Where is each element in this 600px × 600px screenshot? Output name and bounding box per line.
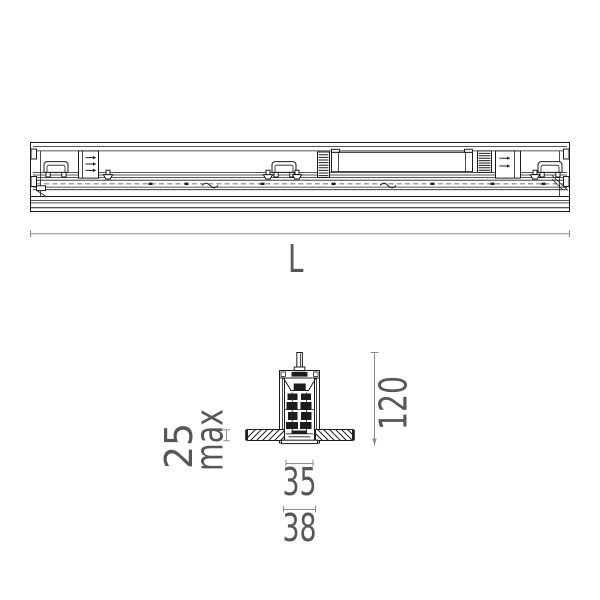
terminal-strip-left bbox=[318, 152, 330, 178]
overall-width-label: 38 bbox=[283, 506, 317, 550]
wiring-box-left bbox=[79, 151, 99, 178]
suspension-hook bbox=[103, 170, 112, 179]
recess-depth-qualifier: max bbox=[188, 409, 232, 471]
dimension-drawing-page: L bbox=[0, 0, 600, 600]
cutout-width-dimension: 35 bbox=[283, 460, 317, 504]
height-label: 120 bbox=[372, 376, 416, 430]
length-dimension: L bbox=[31, 230, 570, 281]
technical-drawing: L bbox=[0, 0, 600, 600]
trim-flange bbox=[282, 440, 318, 443]
wiring-box-right bbox=[496, 151, 521, 178]
overall-width-dimension: 38 bbox=[283, 506, 317, 550]
suspension-hook bbox=[263, 170, 272, 179]
ceiling-panel-right bbox=[311, 429, 360, 442]
section-view bbox=[243, 353, 360, 444]
length-label: L bbox=[288, 237, 304, 281]
cutout-width-label: 35 bbox=[283, 460, 317, 504]
height-dimension: 120 bbox=[371, 353, 416, 446]
suspension-stem bbox=[294, 353, 305, 371]
recess-depth-dimension: 25 max bbox=[157, 409, 232, 471]
terminal-strip-right bbox=[478, 151, 492, 173]
driver-housing bbox=[332, 149, 473, 171]
terminal-block-cluster bbox=[285, 393, 315, 435]
luminaire-side-view bbox=[31, 143, 570, 212]
